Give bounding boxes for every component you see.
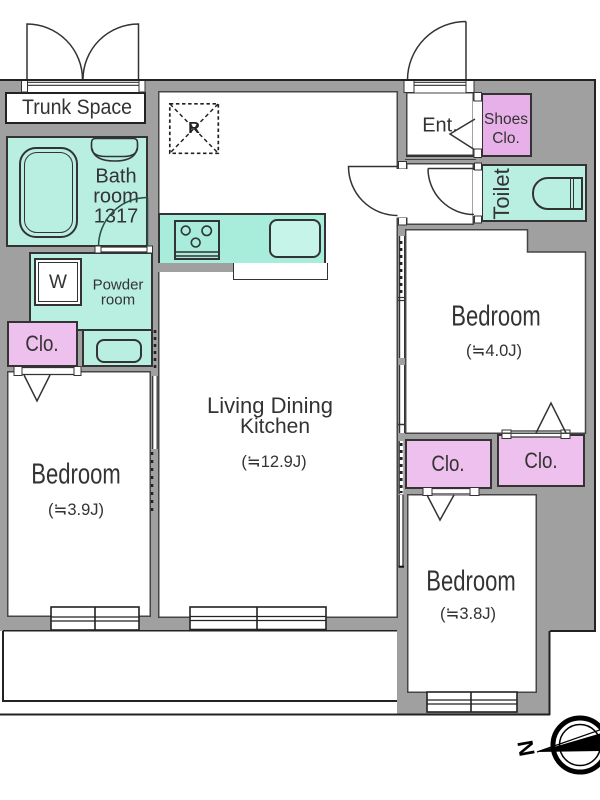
svg-text:N: N [512, 738, 539, 758]
